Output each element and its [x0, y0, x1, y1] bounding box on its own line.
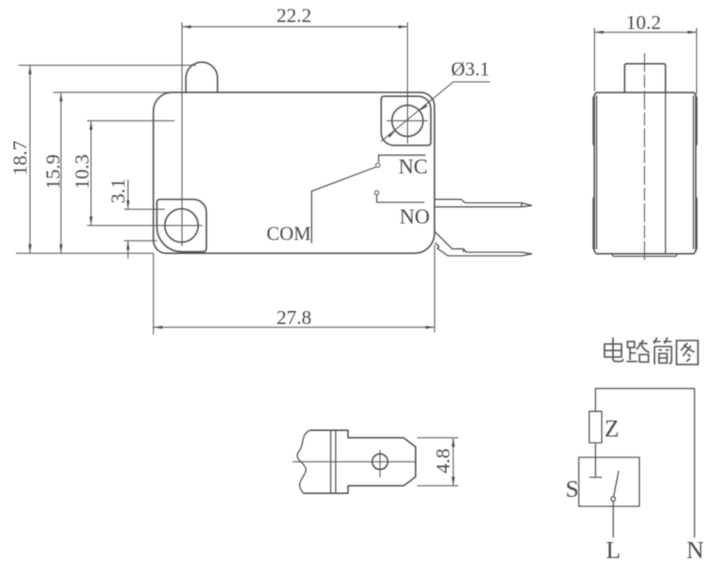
- svg-text:10.2: 10.2: [626, 12, 661, 34]
- svg-text:COM: COM: [267, 224, 311, 245]
- svg-text:NO: NO: [400, 205, 430, 229]
- svg-text:15.9: 15.9: [43, 154, 65, 189]
- svg-text:N: N: [687, 538, 704, 564]
- svg-text:4.8: 4.8: [433, 449, 455, 474]
- svg-text:3.1: 3.1: [108, 179, 130, 204]
- svg-text:18.7: 18.7: [10, 141, 32, 176]
- svg-text:10.3: 10.3: [72, 154, 94, 189]
- svg-text:22.2: 22.2: [277, 5, 312, 27]
- svg-text:NC: NC: [399, 155, 428, 179]
- svg-text:Ø3.1: Ø3.1: [451, 60, 489, 81]
- svg-text:S: S: [566, 477, 579, 503]
- svg-text:L: L: [606, 538, 621, 564]
- svg-text:Z: Z: [605, 417, 620, 443]
- svg-text:27.8: 27.8: [277, 307, 312, 329]
